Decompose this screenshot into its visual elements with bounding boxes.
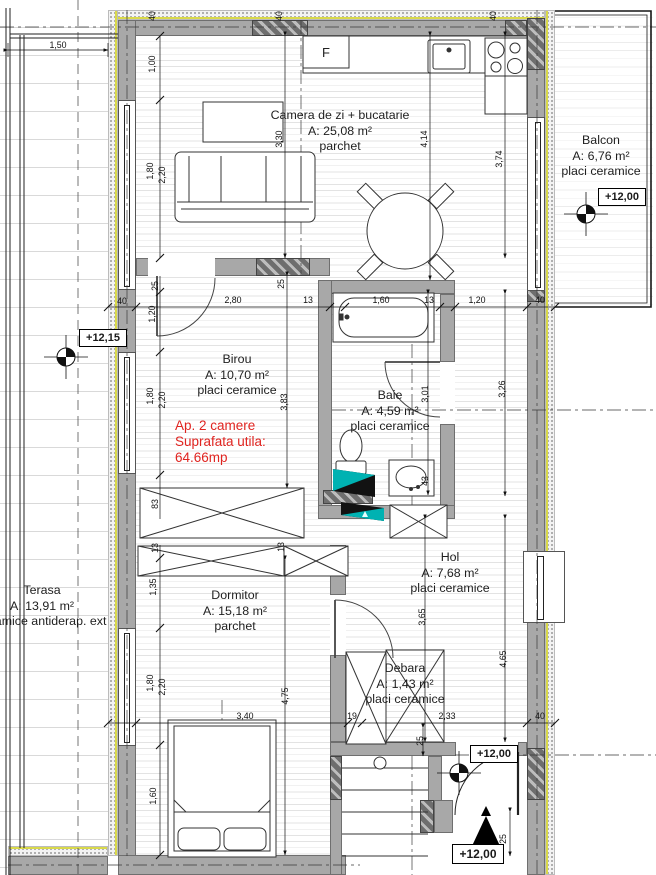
dim-label: 1,60 xyxy=(148,779,158,813)
room-name: Camera de zi + bucatarie xyxy=(230,108,450,124)
dim-label: 1,80 xyxy=(145,379,155,413)
room-floor: placi ceramice xyxy=(548,164,654,180)
wall-bath-bottom xyxy=(318,505,455,519)
dim-label: 83 xyxy=(150,487,160,521)
dim-label: 3,30 xyxy=(274,122,284,156)
room-label-terrace: Terasa A: 13,91 m² ceramice antiderap. e… xyxy=(0,583,142,630)
room-label-balcony: Balcon A: 6,76 m² placi ceramice xyxy=(548,133,654,180)
dim-label: 40 xyxy=(520,295,560,305)
window-glazing xyxy=(535,122,541,288)
window-living xyxy=(118,100,136,290)
dim-label: 4,14 xyxy=(419,122,429,156)
window-office xyxy=(118,352,136,474)
dim-label: 2,80 xyxy=(213,295,253,305)
level-label-stair: +12,00 xyxy=(452,844,504,864)
wall-bath-top xyxy=(330,280,455,294)
room-label-hall: Hol A: 7,68 m² placi ceramice xyxy=(392,550,508,597)
wall-hall-bedroom-upper xyxy=(330,545,346,595)
stairwell-floor xyxy=(342,756,428,875)
room-area: A: 13,91 m² xyxy=(0,599,142,615)
column-right-entry xyxy=(527,748,545,800)
dim-label: 25 xyxy=(498,822,508,856)
room-floor: placi ceramice xyxy=(332,419,448,435)
insulation-top xyxy=(108,10,545,20)
dim-label: 1,60 xyxy=(361,295,401,305)
column-top-right xyxy=(505,20,527,36)
window-bedroom xyxy=(118,628,136,746)
dim-label: 1,35 xyxy=(148,570,158,604)
dim-label: 2,20 xyxy=(157,670,167,704)
dim-label: 2,33 xyxy=(427,711,467,721)
room-label-living: Camera de zi + bucatarie A: 25,08 m² par… xyxy=(230,108,450,155)
terrace-floor xyxy=(0,0,108,875)
dim-label: 13 xyxy=(150,531,160,565)
wall-terrace-bottom xyxy=(8,856,108,875)
room-area: A: 15,18 m² xyxy=(160,604,310,620)
apartment-note-line2: Suprafata utila: xyxy=(175,434,266,450)
wall-top xyxy=(118,20,545,36)
dim-label: 1,20 xyxy=(147,297,157,331)
room-floor: parchet xyxy=(230,139,450,155)
door-gap-bedroom xyxy=(330,595,346,655)
window-balcony-door xyxy=(527,117,545,291)
wall-entry-top-left xyxy=(330,742,456,756)
level-label-terrace: +12,15 xyxy=(79,329,127,347)
room-name: Baie xyxy=(332,388,448,404)
wall-landing-block xyxy=(434,800,453,833)
room-area: A: 25,08 m² xyxy=(230,124,450,140)
column-shaft-band xyxy=(323,490,373,504)
room-area: A: 7,68 m² xyxy=(392,566,508,582)
insulation-left xyxy=(108,10,118,856)
dim-label: 3,65 xyxy=(417,600,427,634)
room-name: Debara xyxy=(347,661,463,677)
dim-label: 25 xyxy=(415,724,425,758)
room-floor: parchet xyxy=(160,619,310,635)
apartment-note-line1: Ap. 2 camere xyxy=(175,418,266,434)
room-floor: ceramice antiderap. ext xyxy=(0,614,142,630)
column-landing xyxy=(420,800,434,833)
dim-label: 3,74 xyxy=(494,142,504,176)
room-floor: placi ceramice xyxy=(392,581,508,597)
dim-label: 3,83 xyxy=(279,385,289,419)
dim-label: 40 xyxy=(102,296,142,306)
room-name: Terasa xyxy=(0,583,142,599)
dim-label: 40 xyxy=(147,0,157,33)
dim-label: 40 xyxy=(520,711,560,721)
dim-label: 40 xyxy=(274,0,284,33)
dim-label: 2,20 xyxy=(157,383,167,417)
room-label-bedroom: Dormitor A: 15,18 m² parchet xyxy=(160,588,310,635)
wall-bath-left xyxy=(318,280,332,519)
dim-label: 1,20 xyxy=(457,295,497,305)
room-label-office: Birou A: 10,70 m² placi ceramice xyxy=(162,352,312,399)
room-floor: placi ceramice xyxy=(162,383,312,399)
fridge-label: F xyxy=(303,36,349,68)
column-stair-left xyxy=(330,756,342,800)
dim-label: 3,40 xyxy=(225,711,265,721)
insulation-terrace-bottom xyxy=(8,846,108,856)
apartment-note-line3: 64.66mp xyxy=(175,450,266,466)
dim-label: 40 xyxy=(488,0,498,33)
window-glazing xyxy=(124,633,130,743)
room-name: Balcon xyxy=(548,133,654,149)
column-corner-ne xyxy=(527,18,545,70)
room-area: A: 4,59 m² xyxy=(332,404,448,420)
window-hall xyxy=(523,551,565,623)
room-name: Hol xyxy=(392,550,508,566)
dim-label: 1,50 xyxy=(38,40,78,50)
window-glazing xyxy=(124,105,130,287)
level-label-entry: +12,00 xyxy=(470,745,518,763)
room-area: A: 6,76 m² xyxy=(548,149,654,165)
level-label-balcony: +12,00 xyxy=(598,188,646,206)
wall-entry-top-right xyxy=(518,742,527,756)
floor-plan: Camera de zi + bucatarie A: 25,08 m² par… xyxy=(0,0,656,875)
room-label-bath: Baie A: 4,59 m² placi ceramice xyxy=(332,388,448,435)
wall-bottom-bedroom xyxy=(118,855,346,875)
dim-label: 13 xyxy=(409,295,449,305)
apartment-note: Ap. 2 camere Suprafata utila: 64.66mp xyxy=(175,418,266,466)
room-area: A: 1,43 m² xyxy=(347,677,463,693)
room-name: Birou xyxy=(162,352,312,368)
dim-label: 43 xyxy=(420,464,430,498)
room-name: Dormitor xyxy=(160,588,310,604)
dim-label: 2,20 xyxy=(157,158,167,192)
dim-label: 4,65 xyxy=(498,642,508,676)
dim-label: 3,26 xyxy=(497,372,507,406)
dim-label: 1,80 xyxy=(145,666,155,700)
dim-label: 13 xyxy=(288,295,328,305)
dim-label: 1,80 xyxy=(145,154,155,188)
dim-label: 3,01 xyxy=(420,377,430,411)
dim-label: 13 xyxy=(276,530,286,564)
window-glazing xyxy=(124,357,130,471)
dim-label: 1,00 xyxy=(147,47,157,81)
room-floor: placi ceramice xyxy=(347,692,463,708)
room-label-storage: Debara A: 1,43 m² placi ceramice xyxy=(347,661,463,708)
room-area: A: 10,70 m² xyxy=(162,368,312,384)
wall-hall-bedroom-lower xyxy=(330,655,346,742)
dim-label: 4,75 xyxy=(280,679,290,713)
dim-label: 19 xyxy=(332,711,372,721)
wall-landing-corner xyxy=(428,756,442,802)
window-glazing xyxy=(537,556,544,620)
dim-label: 25 xyxy=(276,267,286,301)
